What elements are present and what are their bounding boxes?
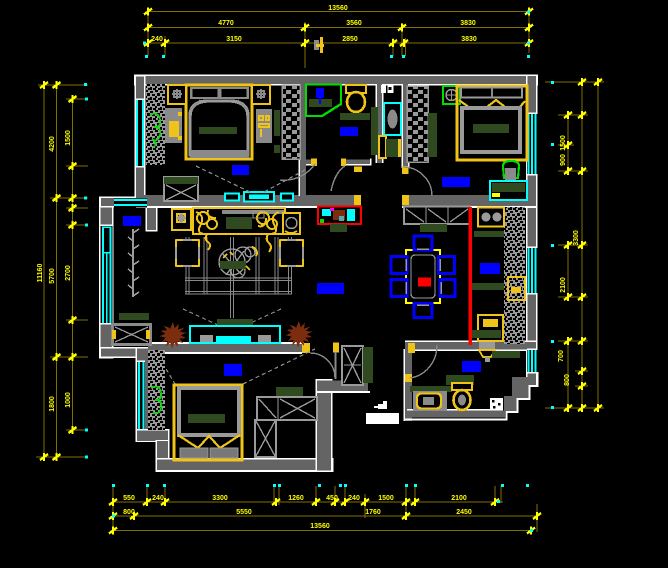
svg-text:450: 450	[326, 495, 338, 502]
svg-text:13560: 13560	[328, 5, 348, 12]
svg-text:1500: 1500	[560, 135, 567, 151]
svg-text:800: 800	[123, 509, 135, 516]
svg-text:3300: 3300	[212, 495, 228, 502]
svg-text:1760: 1760	[365, 509, 381, 516]
svg-text:13560: 13560	[310, 523, 330, 530]
svg-text:1260: 1260	[288, 495, 304, 502]
svg-text:5550: 5550	[236, 509, 252, 516]
svg-text:3560: 3560	[346, 20, 362, 27]
svg-text:1500: 1500	[378, 495, 394, 502]
svg-text:2100: 2100	[451, 495, 467, 502]
svg-text:3830: 3830	[461, 36, 477, 43]
svg-text:800: 800	[564, 374, 571, 386]
svg-text:1000: 1000	[65, 392, 72, 408]
svg-text:900: 900	[560, 154, 567, 166]
svg-text:240: 240	[152, 495, 164, 502]
svg-text:4200: 4200	[49, 136, 56, 152]
svg-text:240: 240	[348, 495, 360, 502]
svg-text:550: 550	[123, 495, 135, 502]
svg-text:1500: 1500	[65, 130, 72, 146]
svg-text:3300: 3300	[573, 230, 580, 246]
svg-text:11160: 11160	[37, 264, 44, 283]
svg-text:3830: 3830	[460, 20, 476, 27]
svg-text:700: 700	[558, 350, 565, 362]
svg-text:2850: 2850	[342, 36, 358, 43]
svg-text:1800: 1800	[49, 396, 56, 412]
svg-text:2450: 2450	[456, 509, 472, 516]
svg-text:5700: 5700	[49, 268, 56, 284]
svg-text:240: 240	[151, 36, 163, 43]
svg-text:3150: 3150	[226, 36, 242, 43]
svg-text:2100: 2100	[560, 277, 567, 293]
svg-text:2700: 2700	[65, 265, 72, 281]
svg-text:4770: 4770	[218, 20, 234, 27]
